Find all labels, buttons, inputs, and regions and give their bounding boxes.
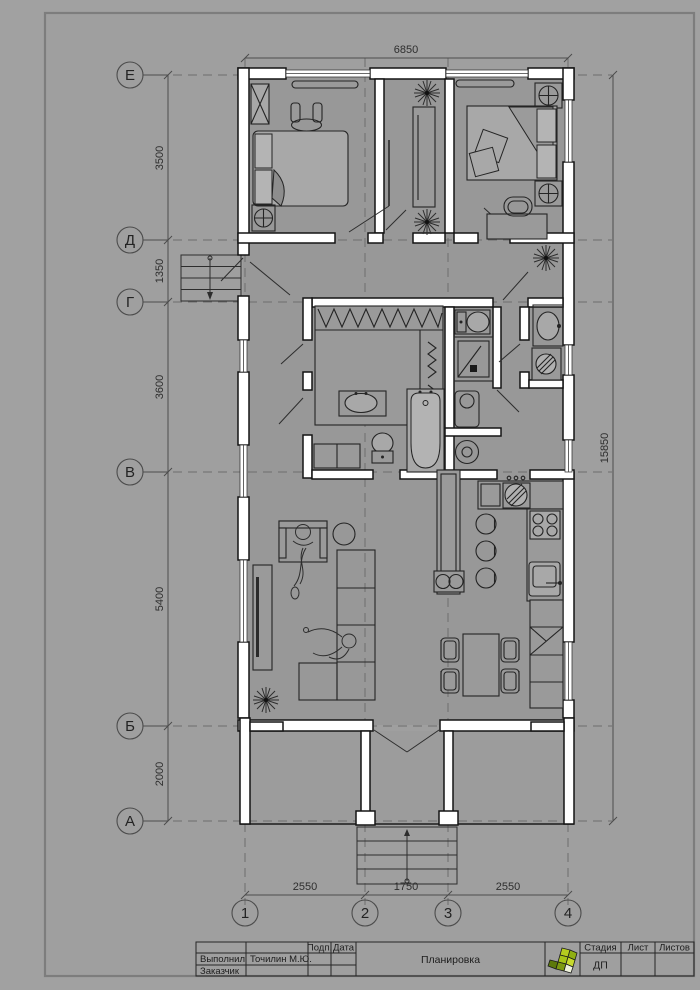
dim-label: 5400 bbox=[154, 587, 166, 611]
nightstand bbox=[535, 83, 562, 108]
axis-label: 1 bbox=[241, 905, 249, 922]
washing-machine bbox=[532, 348, 561, 380]
axis-label: 3 bbox=[444, 905, 452, 922]
stage-value: ДП bbox=[593, 960, 608, 972]
toilet bbox=[372, 433, 393, 463]
date-column-label: Дата bbox=[333, 943, 355, 954]
tv-screen bbox=[256, 577, 259, 657]
sign-column-label: Подп. bbox=[307, 943, 332, 954]
sheet-label: Лист bbox=[628, 943, 649, 954]
toilet bbox=[455, 310, 490, 334]
wardrobe-x-icon bbox=[251, 84, 269, 124]
client-label: Заказчик bbox=[200, 966, 240, 977]
dim-label: 3500 bbox=[154, 146, 166, 170]
double-bed bbox=[253, 131, 348, 206]
kitchen-sink bbox=[529, 562, 562, 596]
axis-label: Г bbox=[126, 294, 134, 311]
axis-label: 4 bbox=[564, 905, 572, 922]
dim-label: 2550 bbox=[293, 881, 317, 893]
dim-label: 6850 bbox=[394, 44, 418, 56]
executor-label: Выполнил bbox=[200, 954, 245, 965]
bar-sink bbox=[434, 571, 464, 592]
dim-label: 1350 bbox=[154, 259, 166, 283]
tall-wardrobe bbox=[413, 107, 435, 207]
axis-label: А bbox=[125, 813, 135, 830]
axis-label: 2 bbox=[361, 905, 369, 922]
shelf bbox=[456, 80, 514, 87]
axis-label: Д bbox=[125, 232, 135, 249]
sheets-label: Листов bbox=[659, 943, 690, 954]
drawing-title: Планировка bbox=[421, 954, 480, 966]
dim-label: 15850 bbox=[599, 433, 611, 464]
drain bbox=[470, 365, 477, 372]
axis-label: Б bbox=[125, 718, 135, 735]
fridge-cabinet-column bbox=[530, 600, 563, 708]
pillow bbox=[537, 145, 556, 178]
nightstand bbox=[535, 181, 562, 206]
axis-label: Е bbox=[125, 67, 135, 84]
pillow bbox=[255, 134, 272, 168]
axis-label: В bbox=[125, 464, 135, 481]
cooktop bbox=[530, 511, 560, 539]
stage-label: Стадия bbox=[584, 943, 616, 954]
dining-table bbox=[463, 634, 499, 696]
vanity-cabinet bbox=[314, 444, 360, 468]
dim-label: 2550 bbox=[496, 881, 520, 893]
dim-label: 2000 bbox=[154, 762, 166, 786]
executor-name: Точилин М.Ю. bbox=[250, 954, 312, 965]
dim-label: 3600 bbox=[154, 375, 166, 399]
pillow bbox=[537, 109, 556, 142]
tv-stand bbox=[253, 565, 272, 670]
curtain-rod bbox=[292, 81, 358, 88]
floor-plan-sheet: 6850 3500 1350 3600 5400 2000 15850 2550… bbox=[0, 0, 700, 990]
pillow bbox=[255, 170, 272, 204]
bathtub bbox=[407, 389, 444, 472]
double-bed bbox=[467, 106, 557, 180]
